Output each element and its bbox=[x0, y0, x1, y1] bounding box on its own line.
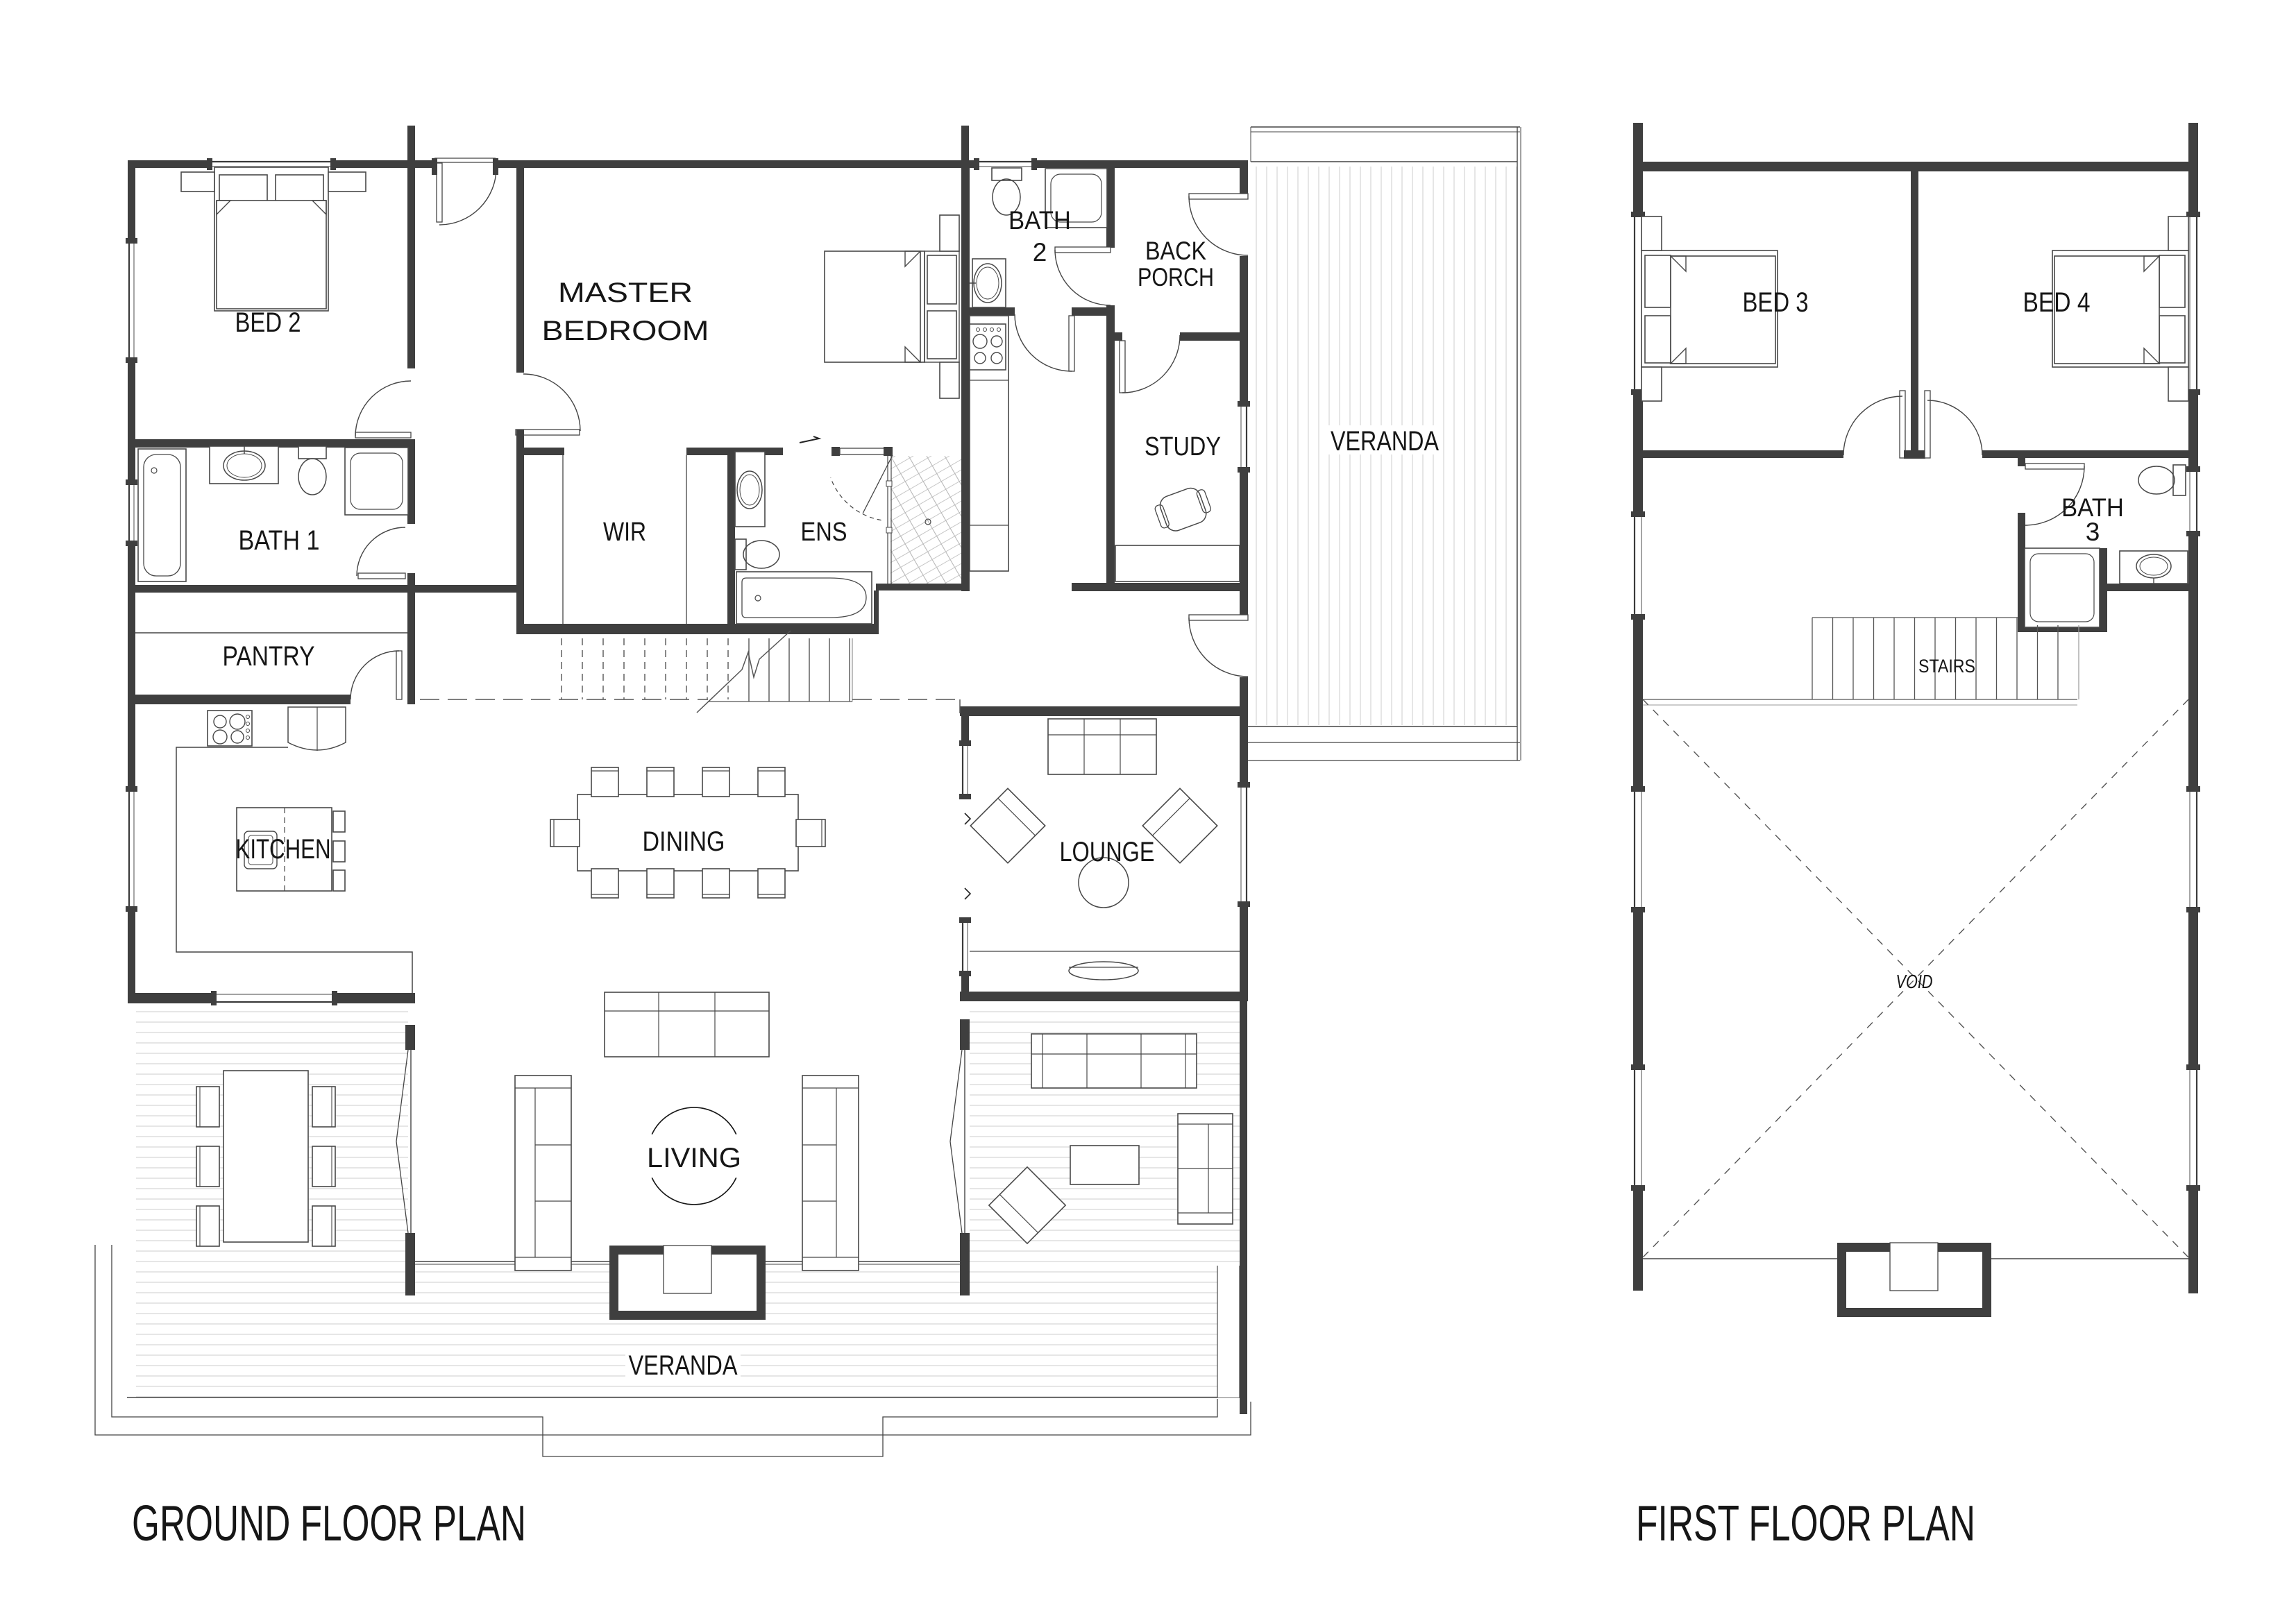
svg-text:FIRST FLOOR PLAN: FIRST FLOOR PLAN bbox=[1636, 1496, 1975, 1552]
svg-text:BED 2: BED 2 bbox=[235, 307, 301, 338]
svg-text:STAIRS: STAIRS bbox=[1918, 656, 1975, 677]
svg-text:KITCHEN: KITCHEN bbox=[236, 834, 331, 865]
svg-text:STUDY: STUDY bbox=[1145, 432, 1221, 461]
svg-text:BATH: BATH bbox=[1008, 206, 1071, 235]
svg-text:BED 3: BED 3 bbox=[1743, 287, 1809, 318]
svg-text:3: 3 bbox=[2086, 518, 2100, 546]
svg-text:MASTER: MASTER bbox=[558, 278, 693, 308]
svg-text:PANTRY: PANTRY bbox=[223, 641, 315, 672]
svg-text:WIR: WIR bbox=[603, 518, 646, 547]
svg-text:PORCH: PORCH bbox=[1138, 263, 1214, 291]
svg-text:VOID: VOID bbox=[1896, 971, 1933, 992]
svg-text:BATH 1: BATH 1 bbox=[239, 525, 320, 556]
svg-text:BED 4: BED 4 bbox=[2023, 287, 2091, 318]
svg-text:2: 2 bbox=[1033, 238, 1047, 266]
svg-text:LIVING: LIVING bbox=[647, 1143, 741, 1173]
svg-text:VERANDA: VERANDA bbox=[629, 1350, 738, 1381]
svg-text:LOUNGE: LOUNGE bbox=[1060, 837, 1155, 867]
svg-text:VERANDA: VERANDA bbox=[1331, 426, 1439, 457]
svg-text:BACK: BACK bbox=[1145, 237, 1206, 265]
svg-text:BEDROOM: BEDROOM bbox=[542, 316, 709, 346]
svg-text:ENS: ENS bbox=[801, 518, 847, 547]
svg-text:DINING: DINING bbox=[643, 826, 725, 857]
svg-text:GROUND FLOOR PLAN: GROUND FLOOR PLAN bbox=[132, 1496, 526, 1552]
